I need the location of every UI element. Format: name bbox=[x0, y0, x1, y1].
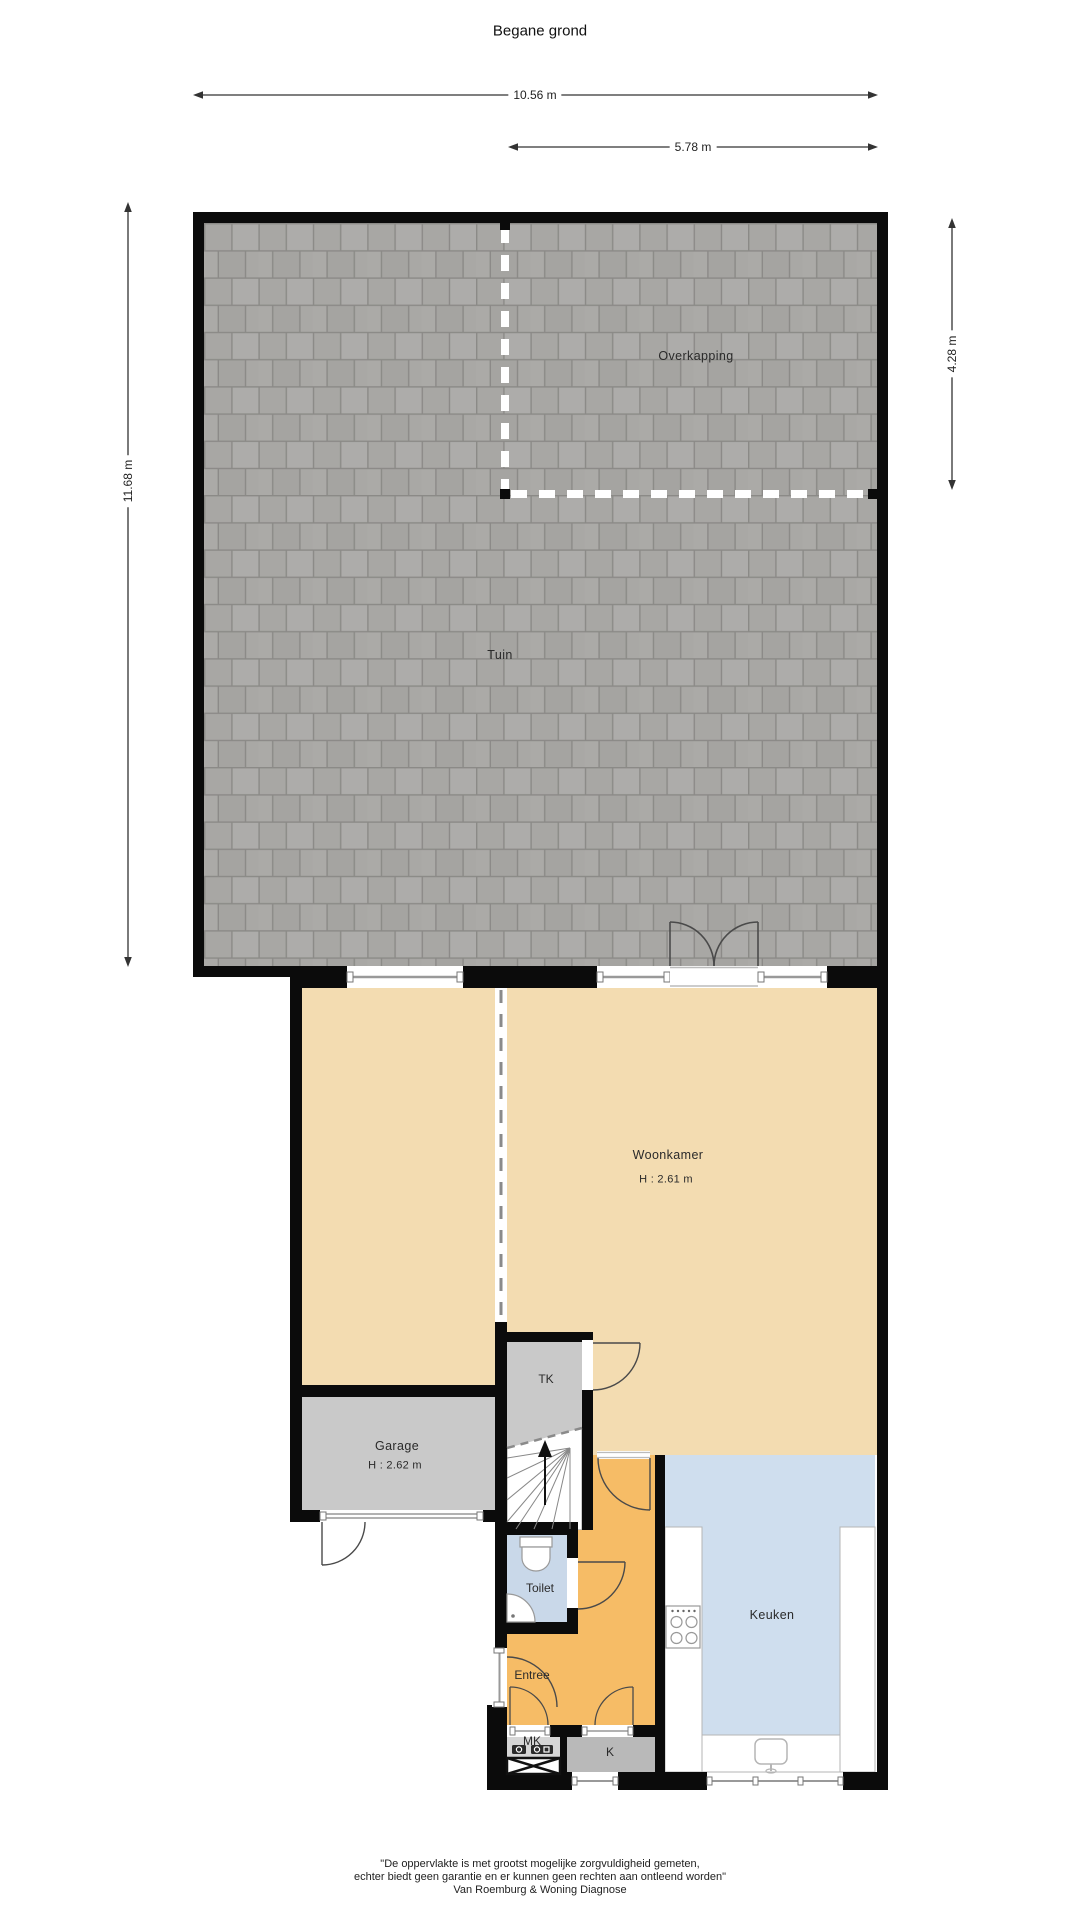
window-woonkamer-left bbox=[347, 966, 463, 988]
window-woonkamer-mid bbox=[597, 966, 670, 988]
kitchen-counter-left bbox=[665, 1527, 702, 1772]
footer-disclaimer-line2: echter biedt geen garantie en er kunnen … bbox=[354, 1871, 726, 1883]
label-mk: MK bbox=[523, 1735, 541, 1747]
floor-plan-drawing bbox=[0, 0, 1080, 1920]
label-garage-height: H : 2.62 m bbox=[368, 1461, 422, 1472]
room-entree-corridor bbox=[593, 1455, 655, 1725]
room-keuken-top bbox=[665, 1455, 875, 1527]
label-k: K bbox=[606, 1746, 614, 1758]
crawl-space-hatch bbox=[507, 1758, 560, 1774]
living-room-partition bbox=[496, 988, 506, 1322]
kitchen-counter-right bbox=[840, 1527, 875, 1772]
stove bbox=[666, 1606, 700, 1648]
room-keuken bbox=[702, 1527, 840, 1735]
room-woonkamer-left bbox=[302, 988, 495, 1387]
label-woonkamer: Woonkamer bbox=[633, 1149, 704, 1162]
footer-disclaimer-line1: "De oppervlakte is met grootst mogelijke… bbox=[380, 1858, 699, 1870]
k-rear-door bbox=[572, 1774, 618, 1788]
label-garage: Garage bbox=[375, 1440, 419, 1453]
dim-garden-height bbox=[124, 202, 132, 967]
room-entree-strip bbox=[578, 1530, 593, 1725]
footer-company: Van Roemburg & Woning Diagnose bbox=[453, 1884, 626, 1896]
garage-door bbox=[320, 1510, 483, 1565]
label-woonkamer-height: H : 2.61 m bbox=[639, 1175, 693, 1186]
dim-label-garden-height: 11.68 m bbox=[121, 455, 135, 507]
dim-label-overkapping-height: 4.28 m bbox=[945, 331, 959, 378]
kitchen-window bbox=[707, 1774, 843, 1788]
label-tk: TK bbox=[538, 1373, 553, 1385]
page-title: Begane grond bbox=[493, 24, 587, 39]
label-tuin: Tuin bbox=[487, 649, 512, 662]
toilet-fixture bbox=[520, 1537, 552, 1571]
label-keuken: Keuken bbox=[750, 1609, 795, 1622]
room-garage bbox=[302, 1397, 495, 1510]
dim-label-total-width: 10.56 m bbox=[508, 88, 561, 102]
garden-tiles bbox=[204, 223, 877, 968]
dim-label-overkapping-width: 5.78 m bbox=[670, 140, 717, 154]
window-woonkamer-right bbox=[758, 966, 827, 988]
label-overkapping: Overkapping bbox=[658, 350, 733, 363]
floorplan-page: Begane grond 10.56 m 5.78 m 11.68 m 4.28… bbox=[0, 0, 1080, 1920]
label-toilet: Toilet bbox=[526, 1582, 554, 1594]
label-entree: Entree bbox=[514, 1669, 549, 1681]
